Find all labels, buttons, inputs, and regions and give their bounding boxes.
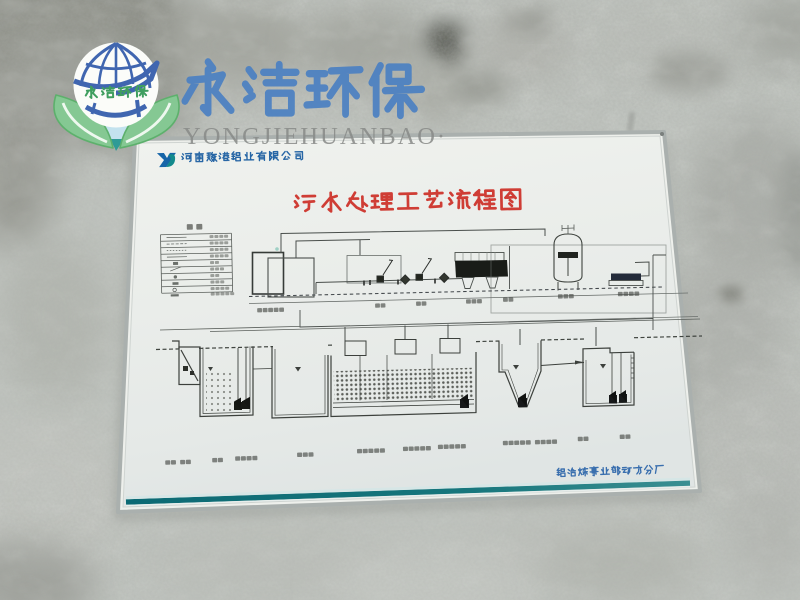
svg-text:YONGJIEHUANBAO·: YONGJIEHUANBAO·: [183, 123, 447, 150]
